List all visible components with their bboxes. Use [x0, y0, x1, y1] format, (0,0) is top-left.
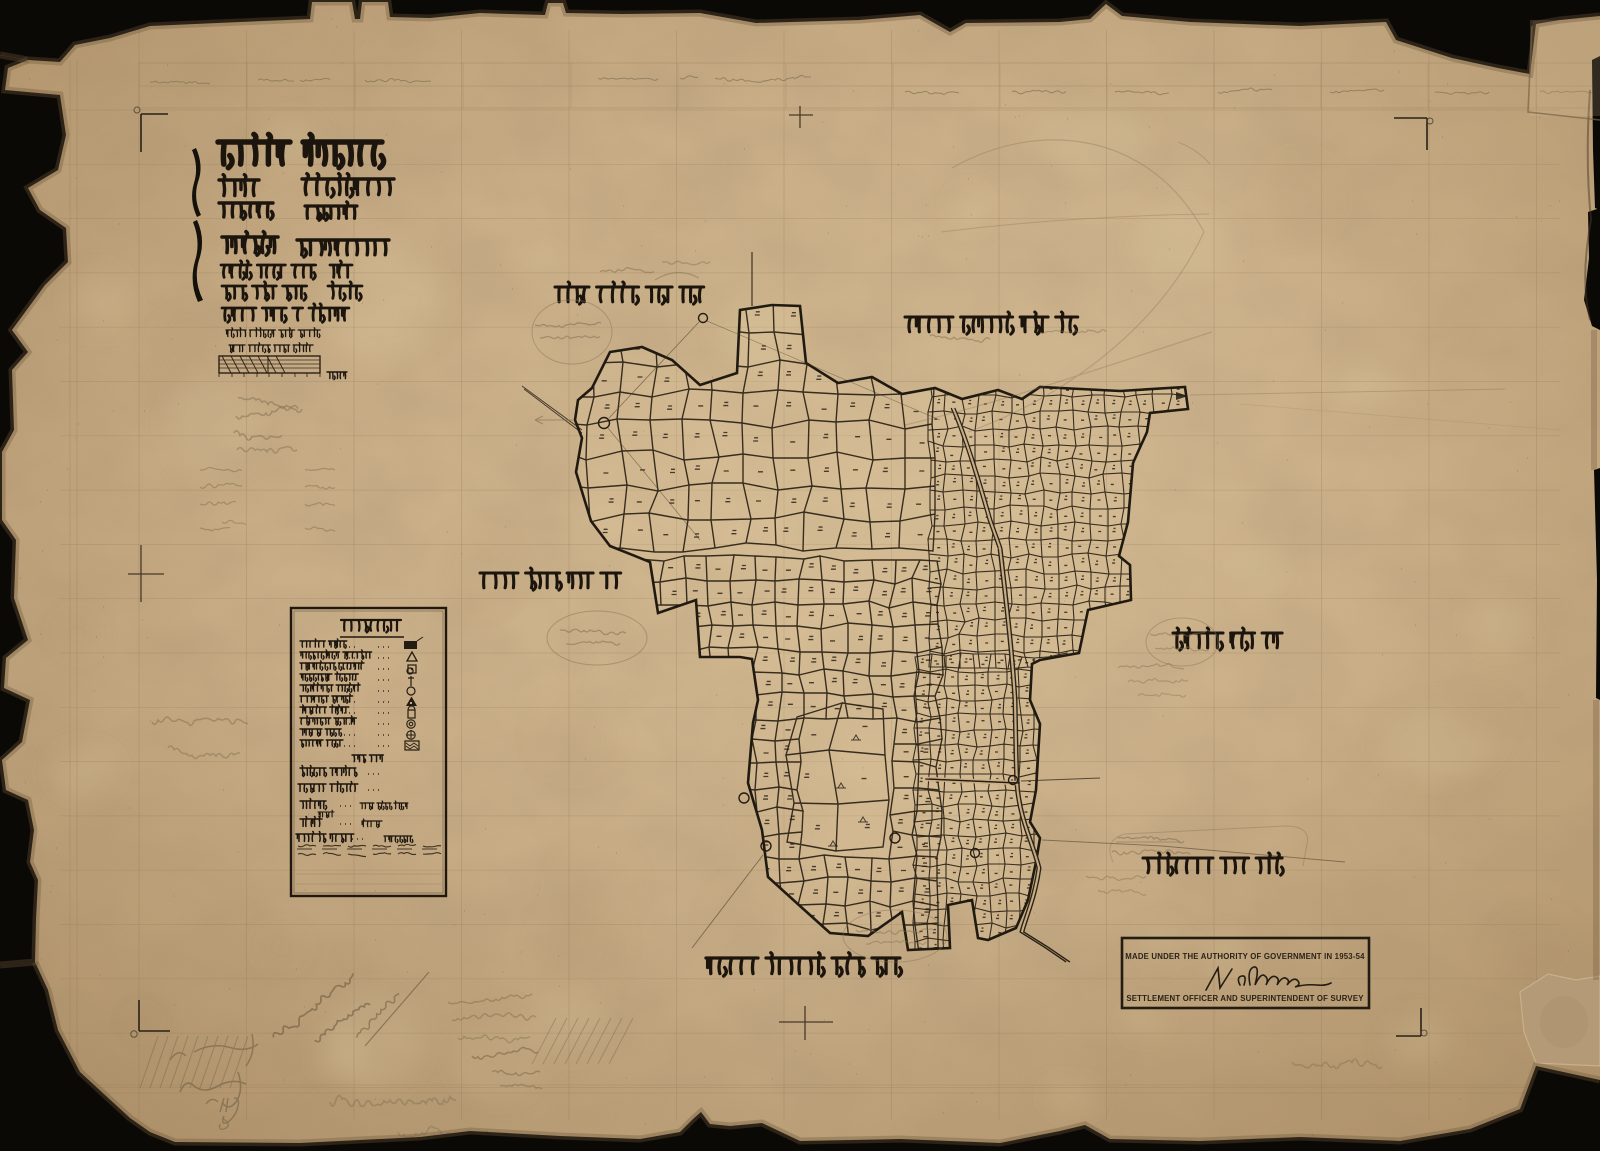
svg-text:SETTLEMENT OFFICER AND SUPERIN: SETTLEMENT OFFICER AND SUPERINTENDENT OF…: [1126, 994, 1364, 1003]
svg-text:MADE UNDER THE AUTHORITY OF GO: MADE UNDER THE AUTHORITY OF GOVERNMENT I…: [1125, 952, 1365, 961]
